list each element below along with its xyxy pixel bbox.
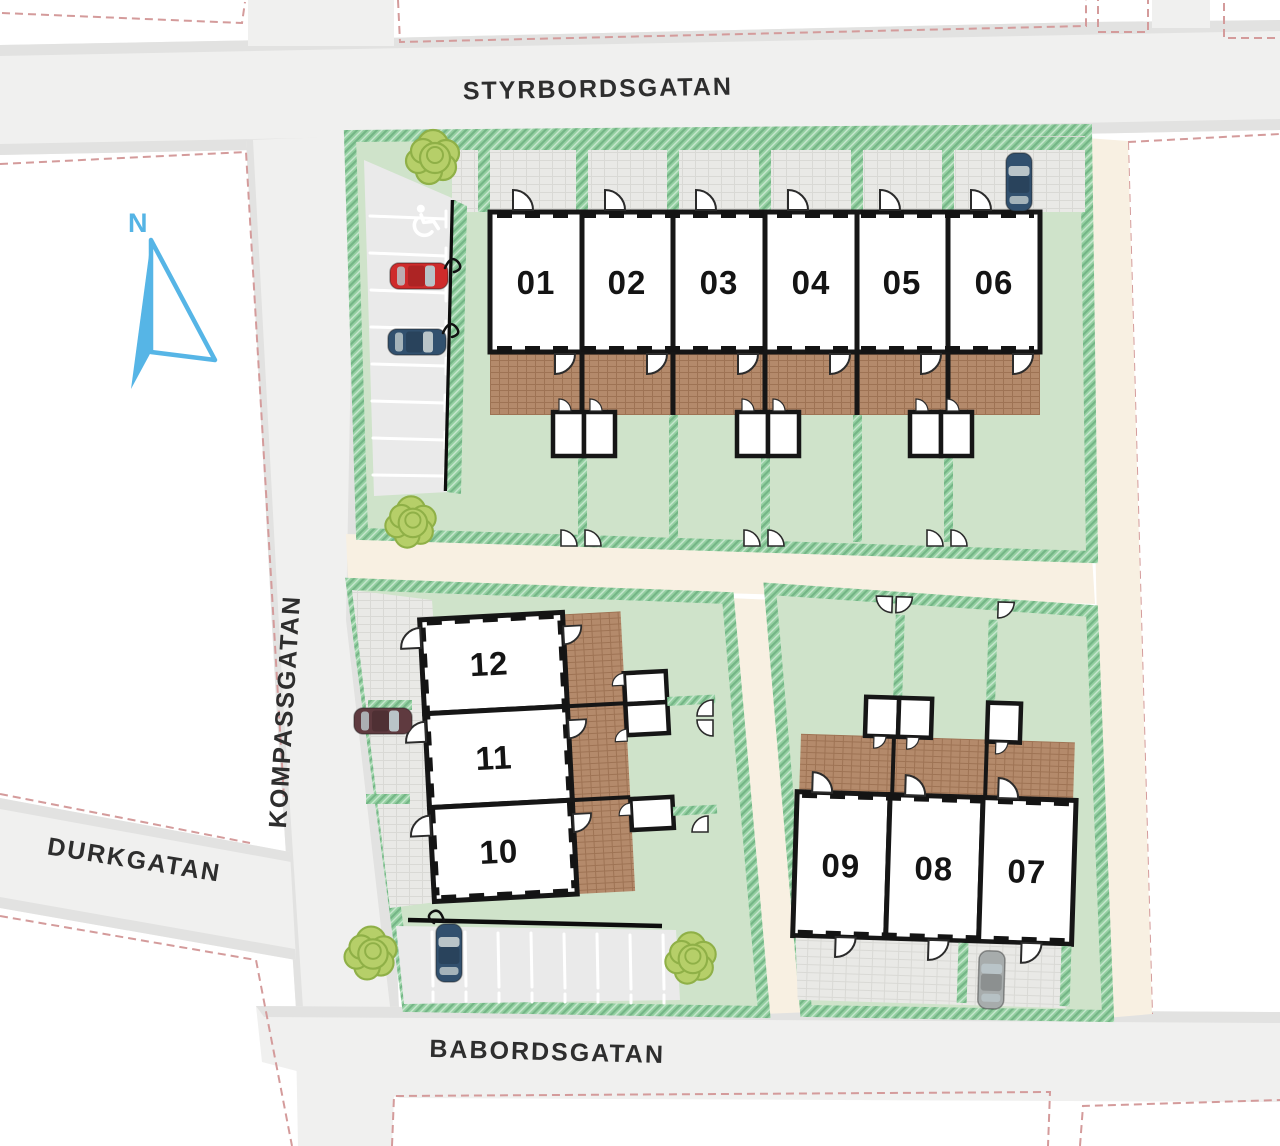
house-unit-03[interactable]: 03: [673, 212, 765, 352]
site-plan: 01 02 03 04 05 06: [0, 0, 1280, 1146]
car-blue-northeast: [1006, 153, 1032, 211]
house-number: 11: [475, 738, 514, 777]
house-unit-11[interactable]: 11: [425, 706, 573, 807]
deck: [799, 734, 1075, 801]
street-label-styrbordsgatan: STYRBORDSGATAN: [463, 73, 734, 106]
house-number: 04: [792, 264, 831, 301]
garden-sheds: [553, 412, 972, 456]
car-blue-west: [388, 329, 446, 355]
party-wall: [985, 744, 987, 797]
north-arrow-icon: N: [128, 208, 215, 389]
house-unit-02[interactable]: 02: [582, 212, 673, 352]
house-number: 12: [469, 644, 510, 683]
house-unit-07[interactable]: 07: [979, 798, 1076, 945]
hedge: [452, 137, 1086, 150]
house-number: 08: [914, 849, 954, 887]
hedge: [1060, 946, 1072, 1006]
house-unit-04[interactable]: 04: [765, 212, 857, 352]
north-label: N: [128, 208, 148, 238]
parking-lot-west: [364, 160, 467, 496]
house-unit-09[interactable]: 09: [793, 792, 890, 939]
car-red: [390, 263, 448, 289]
house-unit-10[interactable]: 10: [430, 800, 578, 901]
hedge: [957, 943, 969, 1003]
hedge: [366, 794, 410, 804]
house-unit-05[interactable]: 05: [857, 212, 948, 352]
car-maroon: [354, 708, 412, 734]
house-number: 09: [821, 846, 861, 884]
house-number: 01: [517, 264, 556, 301]
house-unit-06[interactable]: 06: [948, 212, 1040, 352]
party-wall: [892, 739, 894, 794]
house-number: 02: [608, 264, 647, 301]
house-number: 06: [975, 264, 1014, 301]
house-number: 07: [1007, 852, 1047, 890]
house-unit-01[interactable]: 01: [490, 212, 582, 352]
house-unit-12[interactable]: 12: [420, 612, 568, 713]
house-number: 05: [883, 264, 922, 301]
house-unit-08[interactable]: 08: [886, 795, 983, 942]
car-silver: [977, 950, 1005, 1009]
block-southeast: 09 08 07: [770, 589, 1108, 1016]
house-number: 10: [479, 832, 520, 871]
house-number: 03: [700, 264, 739, 301]
car-blue-south: [436, 924, 462, 982]
